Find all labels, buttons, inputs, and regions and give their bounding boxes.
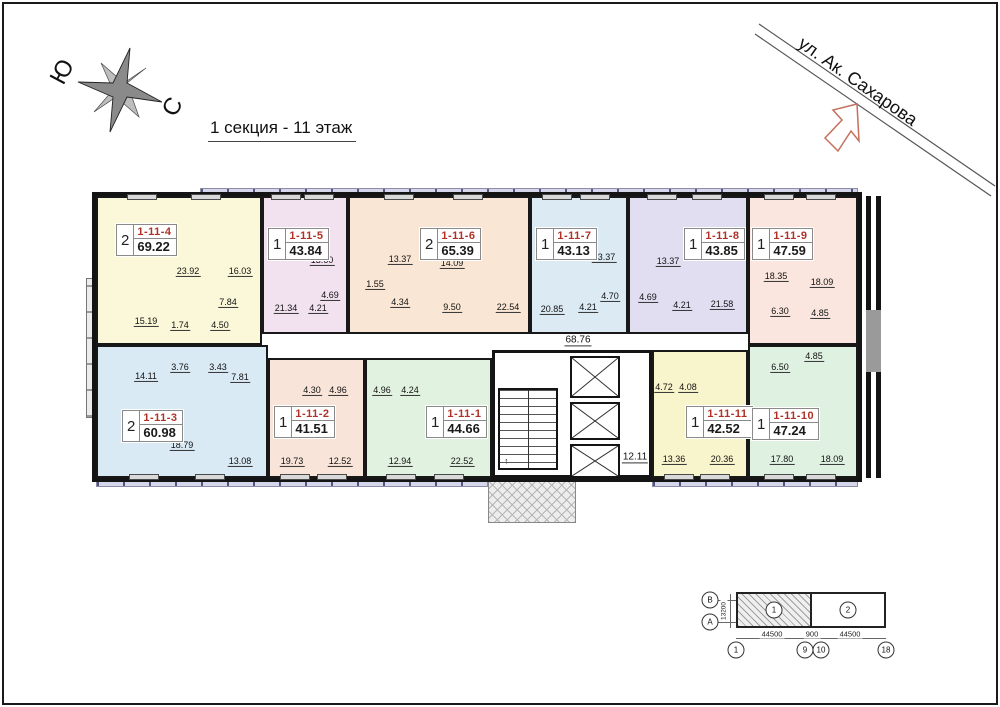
room-area: 23.92 (176, 266, 201, 277)
room-area: 3.43 (208, 362, 228, 373)
window (692, 194, 722, 200)
window (195, 474, 225, 480)
apartment-total-area: 43.13 (554, 243, 595, 259)
room-count: 1 (753, 409, 770, 439)
window (271, 194, 301, 200)
elevator-shaft-3 (570, 444, 620, 478)
room-count: 1 (685, 229, 702, 259)
corridor-area: 68.76 (564, 334, 591, 346)
axis-col-10: 10 (813, 642, 830, 659)
room-area: 18.09 (810, 277, 835, 288)
room-area: 20.36 (710, 454, 735, 465)
room-area: 4.96 (372, 385, 392, 396)
room-area: 7.84 (218, 297, 238, 308)
axis-col-1: 1 (728, 642, 745, 659)
window (700, 474, 730, 480)
room-area: 4.08 (678, 382, 698, 393)
room-area: 6.30 (770, 306, 790, 317)
apartment-label-1-11-2: 11-11-241.51 (274, 406, 335, 438)
room-area: 14.11 (134, 371, 158, 382)
room-area: 13.37 (388, 254, 413, 265)
axis-row-B: В (702, 592, 719, 609)
apartment-label-1-11-11: 11-11-1142.52 (686, 406, 753, 438)
room-area: 4.50 (210, 320, 230, 331)
window (386, 474, 416, 480)
window (664, 474, 694, 480)
room-area: 22.52 (450, 456, 475, 467)
axis-col-9: 9 (797, 642, 814, 659)
entrance-hatch (488, 481, 576, 523)
apartment-total-area: 60.98 (140, 425, 181, 441)
window (764, 194, 794, 200)
kp-dim-left: 44500 (760, 630, 785, 639)
kp-dim-height: 13200 (721, 600, 728, 622)
room-area: 21.34 (274, 303, 299, 314)
room-area: 4.85 (804, 351, 824, 362)
axis-row-A: А (702, 614, 719, 631)
apartment-label-1-11-8: 11-11-843.85 (684, 228, 745, 260)
adjacent-section-wall-joint (866, 310, 881, 372)
apartment-total-area: 69.22 (134, 239, 175, 255)
compass-south-label: Ю (45, 55, 80, 89)
apartment-number: 1-11-6 (438, 229, 479, 243)
apartment-number: 1-11-5 (286, 229, 327, 243)
room-area: 4.21 (578, 302, 598, 313)
room-count: 2 (123, 411, 140, 441)
kp-dim-mid: 900 (804, 630, 821, 639)
room-count: 1 (269, 229, 286, 259)
apartment-number: 1-11-9 (770, 229, 811, 243)
room-area: 19.73 (280, 456, 305, 467)
apartment-label-1-11-3: 21-11-360.98 (122, 410, 183, 442)
room-area: 20.85 (540, 304, 565, 315)
room-area: 4.24 (400, 385, 420, 396)
elevator-shaft-1 (570, 356, 620, 398)
room-area: 15.19 (134, 316, 159, 327)
apartment-number: 1-11-3 (140, 411, 181, 425)
room-area: 17.80 (770, 454, 795, 465)
apartment-number: 1-11-11 (704, 407, 751, 421)
apartment-label-1-11-5: 11-11-543.84 (268, 228, 329, 260)
room-area: 4.72 (654, 382, 674, 393)
room-area: 18.09 (820, 454, 845, 465)
window (434, 474, 464, 480)
apartment-number: 1-11-1 (444, 407, 485, 421)
apartment-number: 1-11-7 (554, 229, 595, 243)
window (317, 474, 347, 480)
kp-section-1-number: 1 (766, 602, 783, 619)
room-area: 6.50 (770, 362, 790, 373)
room-area: 4.69 (638, 292, 658, 303)
room-count: 1 (753, 229, 770, 259)
apartment-label-1-11-1: 11-11-144.66 (426, 406, 487, 438)
room-area: 9.50 (442, 302, 462, 313)
apartment-total-area: 42.52 (704, 421, 751, 437)
apartment-total-area: 43.85 (702, 243, 743, 259)
apartment-total-area: 47.59 (770, 243, 811, 259)
compass-rose: Ю С (45, 25, 200, 153)
compass-north-label: С (157, 93, 189, 121)
room-area: 4.21 (672, 300, 692, 311)
room-area: 13.08 (228, 456, 253, 467)
window (580, 194, 610, 200)
apartment-label-1-11-10: 11-11-1047.24 (752, 408, 819, 440)
room-area: 18.35 (764, 271, 789, 282)
room-area: 16.03 (228, 266, 253, 277)
window (304, 194, 334, 200)
axis-leader-a (718, 622, 736, 623)
room-area: 7.81 (230, 372, 250, 383)
room-count: 2 (117, 225, 134, 255)
room-count: 1 (537, 229, 554, 259)
room-area: 12.52 (328, 456, 353, 467)
street-direction-arrow-icon (825, 104, 859, 151)
room-area: 1.74 (170, 320, 190, 331)
apartment-label-1-11-9: 11-11-947.59 (752, 228, 813, 260)
lobby-area: 12.11 (622, 451, 648, 463)
apartment-number: 1-11-2 (292, 407, 333, 421)
room-count: 1 (687, 407, 704, 437)
plan-title: 1 секция - 11 этаж (208, 118, 356, 142)
kp-dim-right: 44500 (838, 630, 863, 639)
room-area: 4.30 (302, 385, 322, 396)
apartment-total-area: 65.39 (438, 243, 479, 259)
window (127, 194, 157, 200)
apartment-number: 1-11-10 (770, 409, 818, 423)
window (647, 194, 677, 200)
window (453, 194, 483, 200)
apartment-total-area: 43.84 (286, 243, 327, 259)
window (542, 194, 572, 200)
window (280, 474, 310, 480)
room-count: 2 (421, 229, 438, 259)
room-area: 13.37 (656, 256, 681, 267)
apartment-label-1-11-6: 21-11-665.39 (420, 228, 481, 260)
room-count: 1 (427, 407, 444, 437)
apartment-number: 1-11-4 (134, 225, 175, 239)
staircase: ↑ (498, 388, 558, 470)
window (384, 194, 414, 200)
room-area: 4.69 (320, 290, 340, 301)
apartment-label-1-11-4: 21-11-469.22 (116, 224, 177, 256)
room-area: 1.55 (365, 279, 385, 290)
kp-section-2-number: 2 (840, 602, 857, 619)
apartment-total-area: 41.51 (292, 421, 333, 437)
apartment-total-area: 44.66 (444, 421, 485, 437)
window (806, 474, 836, 480)
window (806, 194, 836, 200)
kp-section-1: 1 (738, 594, 810, 626)
apartment-number: 1-11-8 (702, 229, 743, 243)
room-area: 4.21 (308, 303, 328, 314)
stair-divider (528, 390, 529, 468)
room-area: 22.54 (496, 302, 521, 313)
window (191, 194, 221, 200)
window (764, 474, 794, 480)
room-area: 3.76 (170, 362, 190, 373)
room-area: 21.58 (710, 299, 735, 310)
kp-building: 1 2 (736, 592, 886, 628)
street-line-inner (755, 34, 991, 196)
room-area: 4.34 (390, 297, 410, 308)
axis-col-18: 18 (878, 642, 895, 659)
balcony-strip-left (86, 278, 96, 418)
room-area: 13.36 (662, 454, 687, 465)
compass-star-main (78, 48, 162, 132)
room-area: 4.96 (328, 385, 348, 396)
apartment-1-11-8 (628, 196, 748, 334)
room-area: 4.70 (600, 291, 620, 302)
room-area: 4.85 (810, 308, 830, 319)
stair-direction-arrow-icon: ↑ (504, 456, 509, 466)
room-count: 1 (275, 407, 292, 437)
street-sign: ул. Ак. Сахарова (735, 0, 1000, 200)
kp-vert-dimline (730, 594, 731, 628)
apartment-label-1-11-7: 11-11-743.13 (536, 228, 597, 260)
room-area: 12.94 (388, 456, 413, 467)
kp-section-2: 2 (810, 594, 884, 626)
apartment-total-area: 47.24 (770, 423, 818, 439)
window (129, 474, 159, 480)
elevator-shaft-2 (570, 402, 620, 440)
